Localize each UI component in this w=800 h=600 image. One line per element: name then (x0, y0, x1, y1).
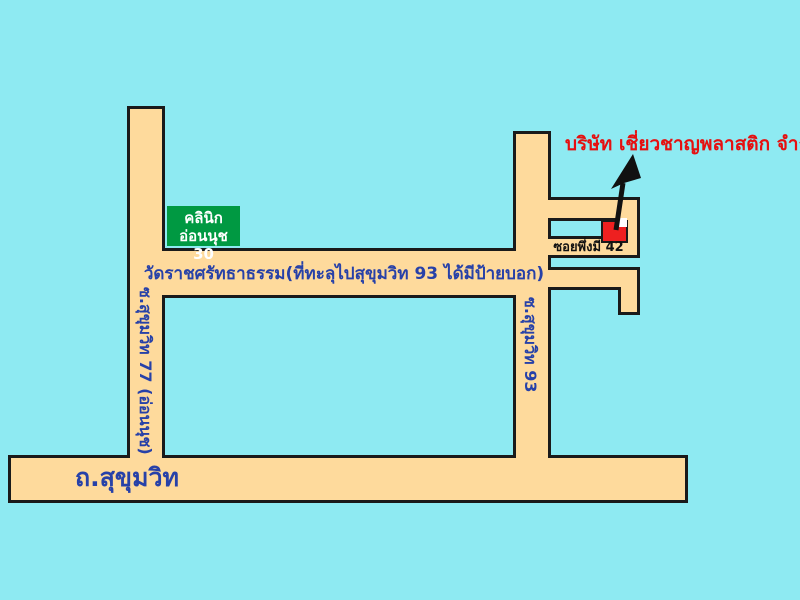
company-name-label: บริษัท เชี่ยวชาญพลาสติก จำกัด (565, 129, 800, 159)
soi-93-label: ซ.สุขุมวิท 93 (517, 297, 542, 393)
soi-phuengmi-label: ซอยพึ่งมี 42 (537, 238, 640, 255)
middle-road-note: วัดราชศรัทธาธรรม(ที่ทะลุไปสุขุมวิท 93 ได… (140, 251, 548, 295)
east-branch-stub (621, 285, 637, 312)
arrow-head (611, 154, 641, 189)
clinic-sign-line1: คลินิก (167, 209, 240, 227)
marker-door-notch (617, 218, 627, 227)
sukhumvit-road-label: ถ.สุขุมวิท (75, 458, 179, 498)
clinic-sign: คลินิก อ่อนนุช 30 (167, 206, 240, 246)
arrow-to-company (0, 0, 800, 600)
soi-77-label: ซ.สุขุมวิท 77 (อ่อนนุช) (132, 287, 157, 455)
location-map: คลินิก อ่อนนุช 30 บริษัท เชี่ยวชาญพลาสติ… (0, 0, 800, 600)
